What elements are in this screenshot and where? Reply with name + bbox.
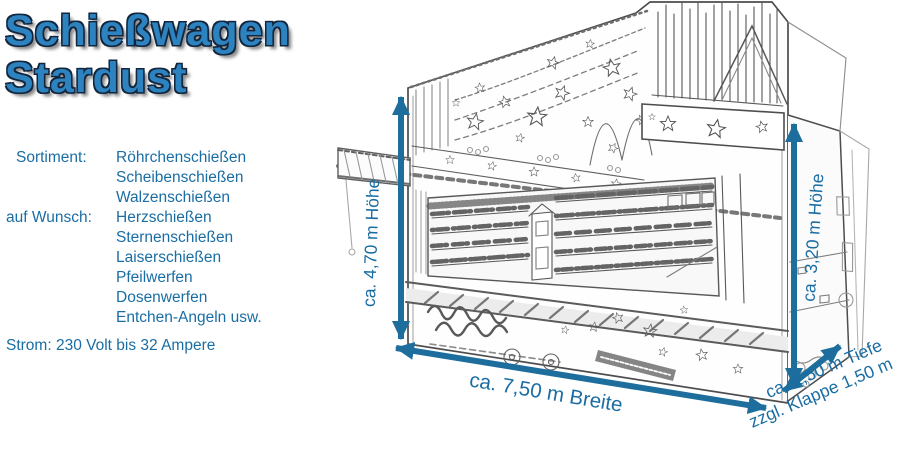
wagon-sketch: [338, 2, 869, 403]
flyer-page: Schießwagen Stardust Sortiment:Röhrchens…: [0, 0, 900, 450]
width-label: ca. 7,50 m Breite: [468, 368, 625, 416]
wagon-illustration: ca. 4,70 m Höhe ca. 3,20 m Höhe ca. 7,50…: [0, 0, 900, 450]
height-left-label: ca. 4,70 m Höhe: [359, 178, 383, 307]
